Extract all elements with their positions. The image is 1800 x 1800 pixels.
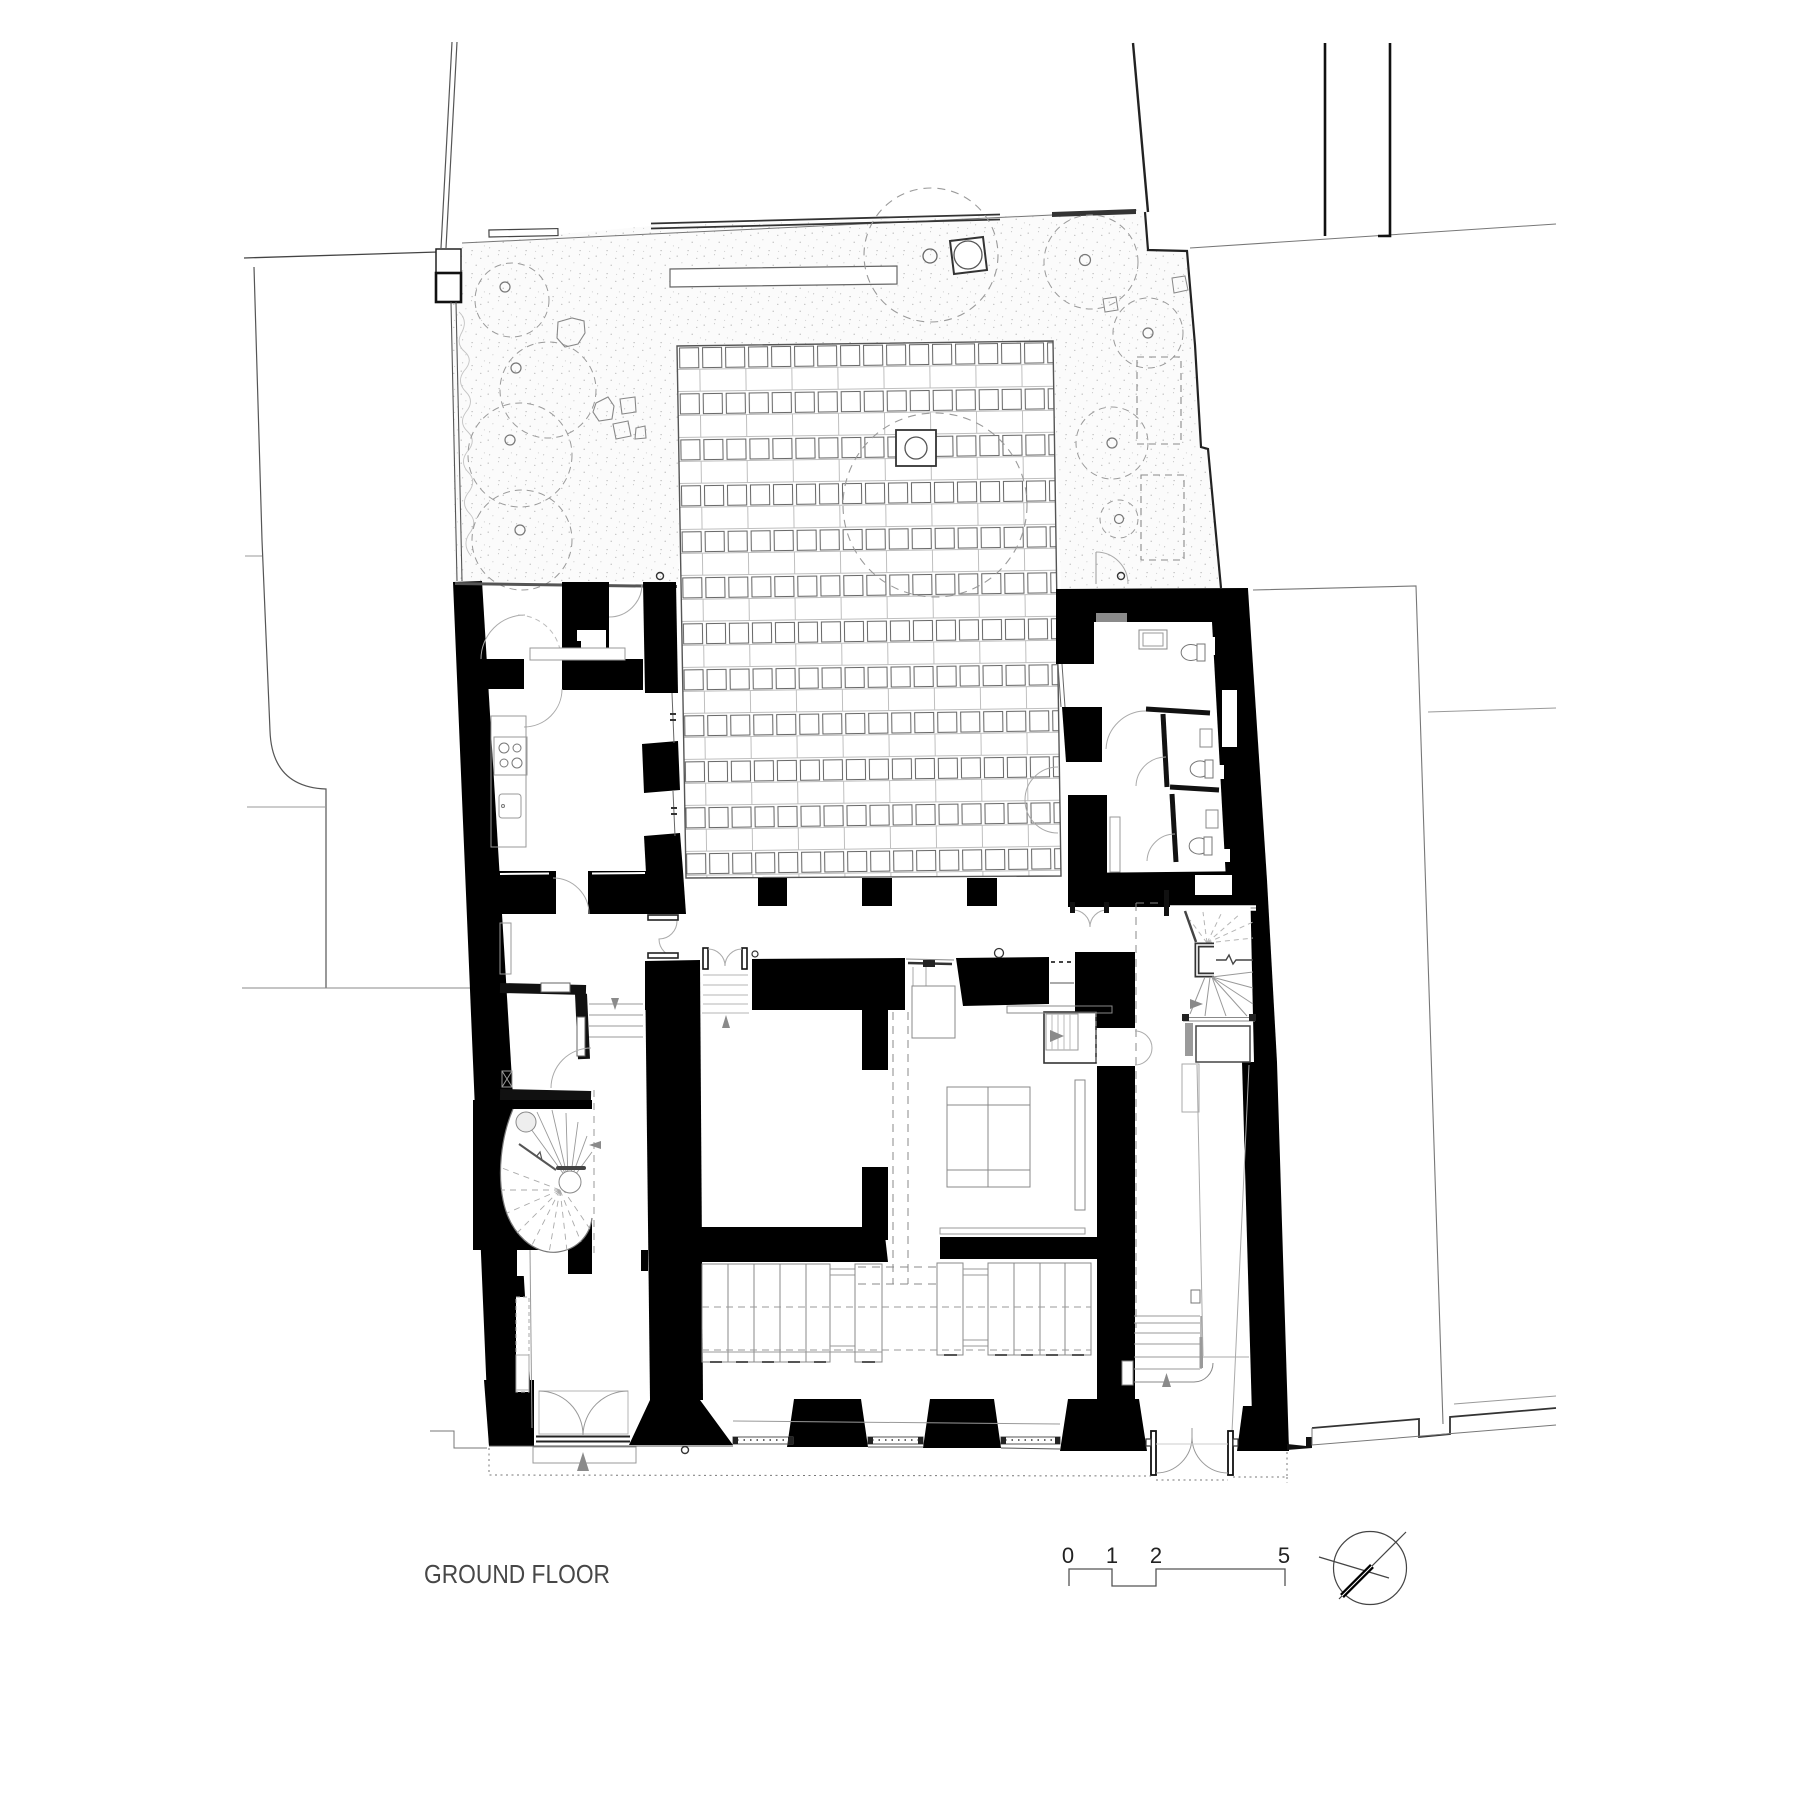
- svg-text:GROUND FLOOR: GROUND FLOOR: [424, 1559, 610, 1589]
- svg-text:1: 1: [1106, 1543, 1118, 1568]
- svg-text:2: 2: [1150, 1543, 1162, 1568]
- svg-text:5: 5: [1278, 1543, 1290, 1568]
- svg-text:0: 0: [1062, 1543, 1074, 1568]
